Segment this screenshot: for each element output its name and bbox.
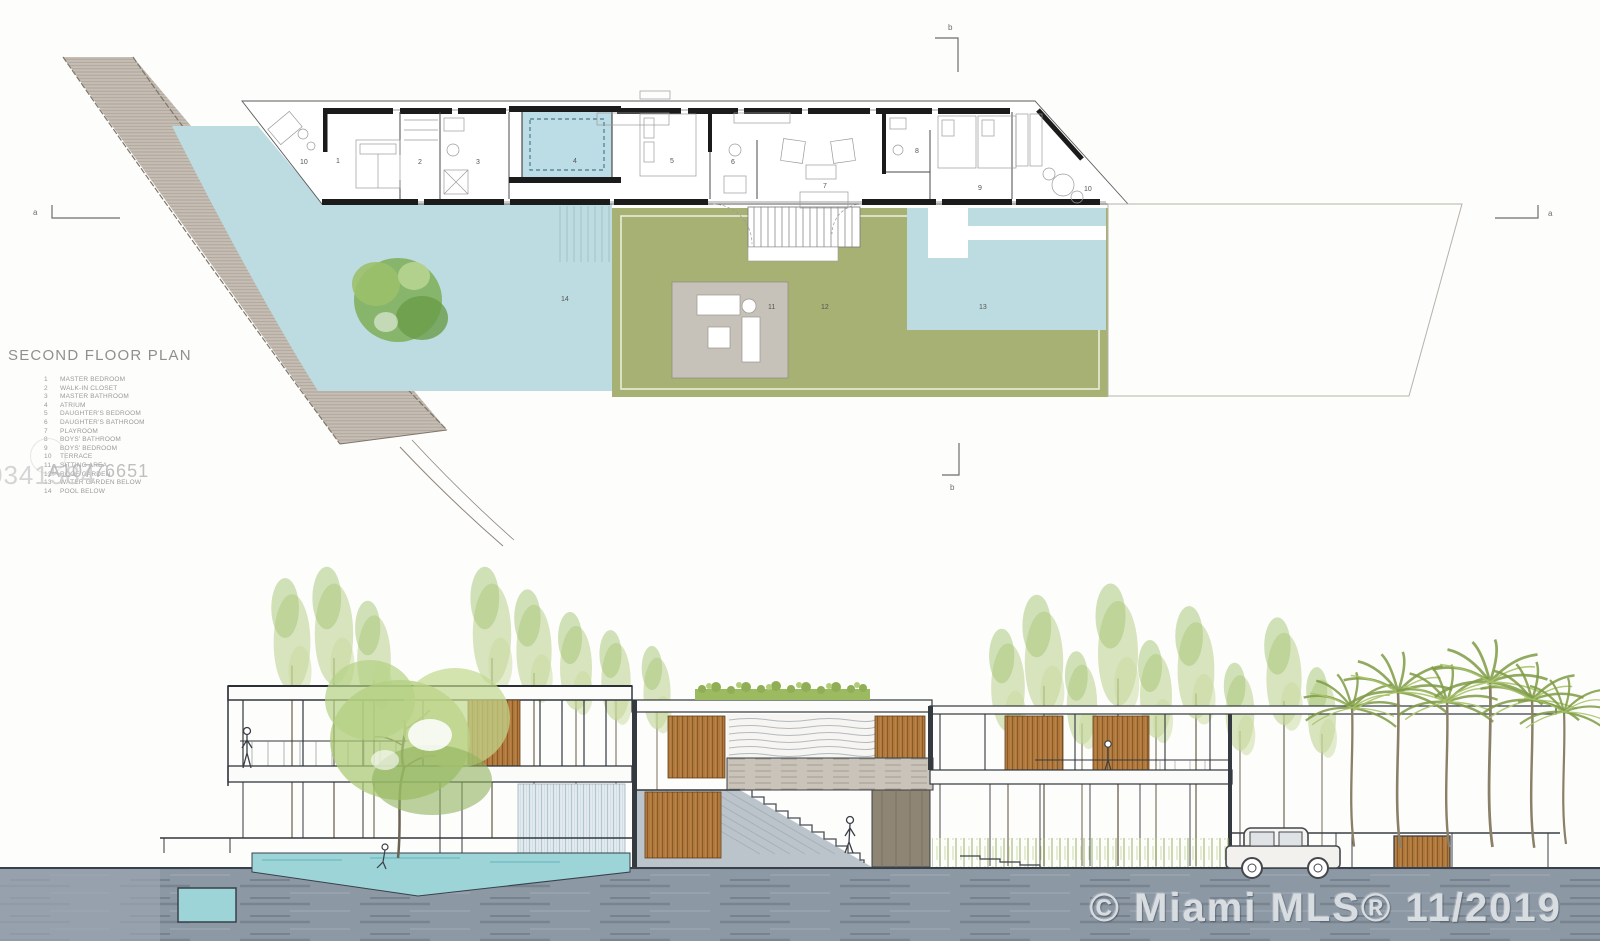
green-roof (695, 681, 870, 700)
svg-text:4: 4 (573, 158, 577, 165)
building-outline (242, 101, 1128, 204)
palm-trees (1304, 640, 1600, 848)
watermark-mls-id: A10776651 (48, 461, 149, 482)
svg-text:6: 6 (731, 159, 735, 166)
svg-text:2: 2 (418, 159, 422, 166)
svg-text:b: b (950, 483, 955, 492)
svg-text:a: a (33, 208, 38, 217)
legend-item: 5DAUGHTER'S BEDROOM (44, 410, 145, 419)
water-view-opening (727, 714, 875, 758)
svg-text:7: 7 (823, 183, 827, 190)
lower-wall (872, 790, 930, 867)
property-outline (1108, 204, 1462, 396)
svg-text:1: 1 (336, 158, 340, 165)
atrium (509, 106, 621, 183)
legend-item: 7PLAYROOM (44, 428, 145, 437)
svg-text:5: 5 (670, 158, 674, 165)
architectural-sheet: 10 1 2 3 4 5 6 7 8 9 10 11 12 13 14 a a … (0, 0, 1600, 941)
page-title: SECOND FLOOR PLAN (8, 347, 192, 364)
sitting-deck (672, 282, 788, 378)
watermark-footer: © Miami MLS® 11/2019 (1090, 886, 1562, 931)
figure-on-stair (845, 817, 855, 854)
svg-text:10: 10 (1084, 186, 1092, 193)
feature-tree (325, 660, 510, 858)
house-center (632, 681, 933, 868)
svg-text:13: 13 (979, 304, 987, 311)
svg-text:10: 10 (300, 159, 308, 166)
legend-item: 6DAUGHTER'S BATHROOM (44, 419, 145, 428)
legend-item: 3MASTER BATHROOM (44, 393, 145, 402)
svg-text:14: 14 (561, 296, 569, 303)
legend-item: 1MASTER BEDROOM (44, 376, 145, 385)
water-garden (907, 208, 1106, 330)
floor-plan: 10 1 2 3 4 5 6 7 8 9 10 11 12 13 14 a a … (33, 23, 1553, 546)
svg-text:b: b (948, 23, 953, 32)
svg-text:3: 3 (476, 159, 480, 166)
drawing-canvas: 10 1 2 3 4 5 6 7 8 9 10 11 12 13 14 a a … (0, 0, 1600, 941)
elevation-drawing (0, 567, 1600, 941)
svg-text:11: 11 (768, 304, 775, 311)
svg-text:9: 9 (978, 185, 982, 192)
legend-item: 4ATRIUM (44, 402, 145, 411)
svg-text:a: a (1548, 209, 1553, 218)
svg-text:12: 12 (821, 304, 829, 311)
svg-text:8: 8 (915, 148, 919, 155)
water-tank (178, 888, 236, 922)
legend-item: 2WALK-IN CLOSET (44, 385, 145, 394)
